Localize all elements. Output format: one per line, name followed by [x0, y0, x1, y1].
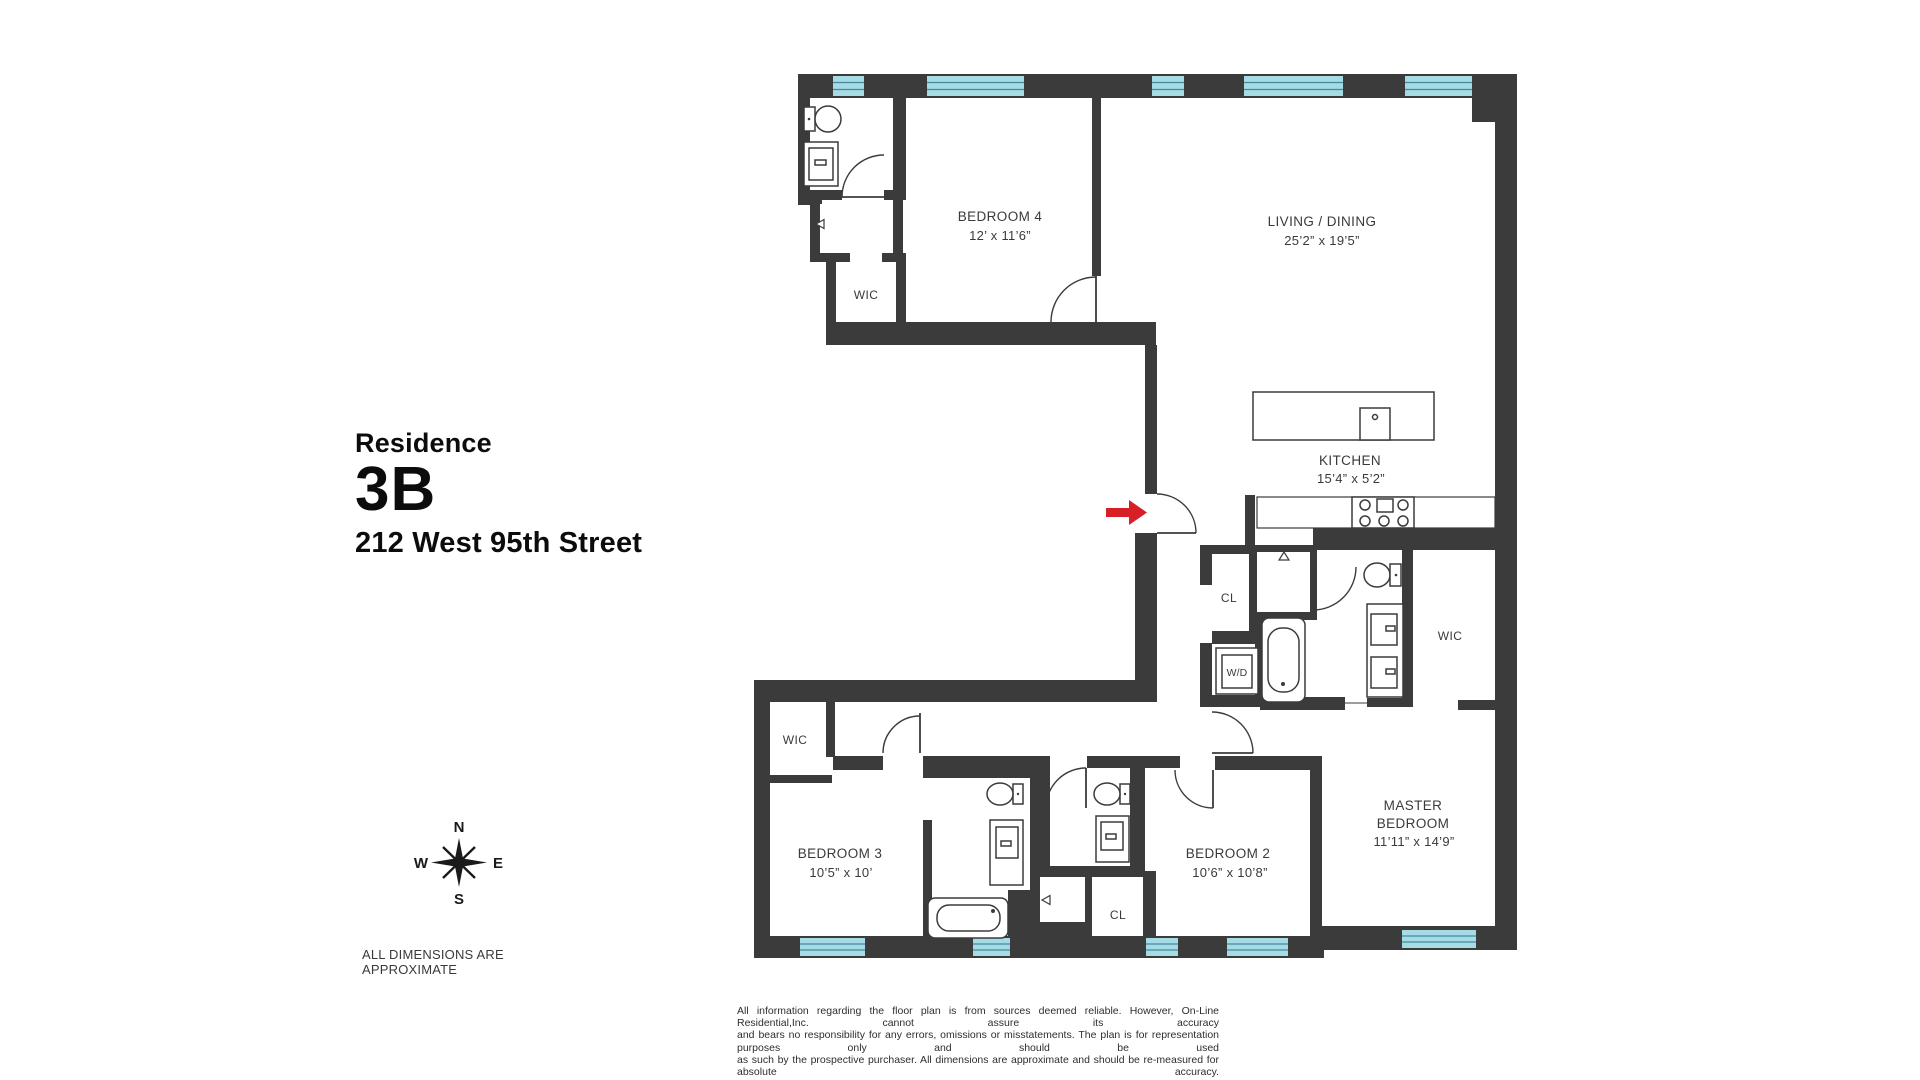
- living-dining-dims: 25’2” x 19’5”: [1284, 233, 1359, 248]
- wic-top-label: WIC: [854, 288, 879, 302]
- bedroom2-label: BEDROOM 2: [1186, 846, 1271, 861]
- cl-foyer-label: CL: [1221, 591, 1237, 605]
- fixtures: [804, 106, 1495, 938]
- floor-plan: BEDROOM 4 12’ x 11’6” LIVING / DINING 25…: [0, 0, 1920, 1080]
- vanity-bathroom2: [1096, 816, 1129, 862]
- vanity-master-bath: [1367, 604, 1403, 697]
- bedroom3-door: [883, 713, 920, 753]
- vanity-bathroom1: [990, 820, 1023, 885]
- kitchen-dims: 15’4” x 5’2”: [1317, 471, 1385, 486]
- stove-icon: [1352, 497, 1414, 528]
- room-labels: BEDROOM 4 12’ x 11’6” LIVING / DINING 25…: [783, 209, 1463, 922]
- kitchen-island: [1253, 392, 1434, 440]
- entry-door: [1157, 494, 1196, 533]
- bedroom2-dims: 10’6” x 10’8”: [1192, 865, 1267, 880]
- wic-left-label: WIC: [783, 733, 808, 747]
- bathtub-bathroom1: [928, 898, 1008, 938]
- bathroom2-door: [1046, 768, 1086, 808]
- bedroom4-label: BEDROOM 4: [958, 209, 1043, 224]
- master-bedroom-label-1: MASTER: [1384, 798, 1443, 813]
- washer-dryer-label: W/D: [1227, 667, 1248, 679]
- cl-bedroom2-label: CL: [1110, 908, 1126, 922]
- triangle-marker-cl2: [1042, 896, 1050, 905]
- triangle-marker-pantry: [1279, 552, 1289, 560]
- kitchen-label: KITCHEN: [1319, 453, 1381, 468]
- bedroom2-door: [1175, 770, 1213, 808]
- master-bedroom-dims: 11’11” x 14’9”: [1373, 834, 1454, 849]
- bathtub-master: [1262, 618, 1305, 702]
- toilet-master-bath: [1364, 563, 1401, 587]
- toilet-bathroom2: [1094, 783, 1130, 805]
- toilet-top-bath: [804, 106, 841, 132]
- living-dining-label: LIVING / DINING: [1268, 214, 1377, 229]
- bath-top-door: [842, 155, 884, 197]
- vanity-top-bath: [804, 142, 838, 186]
- master-suite-door: [1212, 712, 1253, 753]
- wic-master-label: WIC: [1438, 629, 1463, 643]
- master-bath-door: [1313, 567, 1356, 610]
- bedroom3-label: BEDROOM 3: [798, 846, 883, 861]
- bedroom3-dims: 10’5” x 10’: [809, 865, 872, 880]
- master-bedroom-label-2: BEDROOM: [1377, 816, 1450, 831]
- bedroom4-door: [1051, 276, 1096, 322]
- bedroom4-dims: 12’ x 11’6”: [969, 228, 1031, 243]
- toilet-bathroom1: [987, 783, 1023, 805]
- entry-arrow: [1106, 500, 1147, 525]
